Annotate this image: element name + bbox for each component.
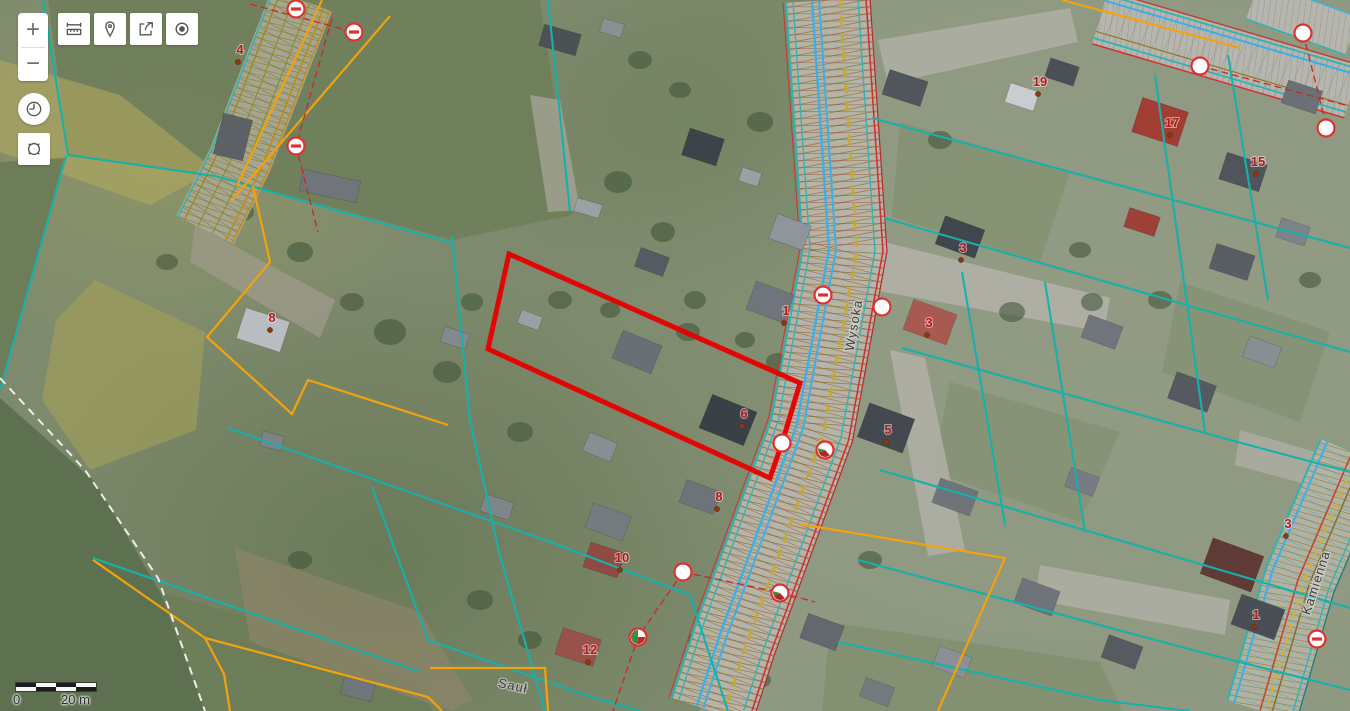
svg-text:6: 6 [740, 406, 747, 421]
sign-marker[interactable] [288, 138, 305, 155]
tree [507, 422, 533, 442]
sign-marker[interactable] [1192, 58, 1209, 75]
tree [287, 242, 313, 262]
sign-marker[interactable] [1309, 631, 1326, 648]
sign-marker[interactable] [815, 287, 832, 304]
svg-text:10: 10 [615, 550, 629, 565]
tree [684, 291, 706, 309]
tree [340, 293, 364, 311]
sign-marker[interactable] [772, 585, 789, 602]
tree [156, 254, 178, 270]
share-icon [136, 19, 156, 39]
terrain-patch [42, 280, 205, 470]
svg-text:8: 8 [268, 310, 275, 325]
sign-marker[interactable] [1318, 120, 1335, 137]
tree [735, 332, 755, 348]
svg-text:1: 1 [782, 303, 789, 318]
building [585, 503, 631, 541]
sign-marker[interactable] [774, 435, 791, 452]
ruler-icon [64, 19, 84, 39]
svg-text:4: 4 [236, 42, 244, 57]
svg-text:5: 5 [884, 422, 891, 437]
house-number: 8 [714, 489, 722, 512]
tree [1299, 272, 1321, 288]
pin-icon [100, 19, 120, 39]
measure-button[interactable] [58, 13, 90, 45]
svg-text:12: 12 [583, 642, 597, 657]
sign-marker[interactable] [675, 564, 692, 581]
tree [288, 551, 312, 569]
tree [467, 590, 493, 610]
svg-text:3: 3 [925, 315, 932, 330]
history-button[interactable] [18, 93, 50, 125]
map-canvas[interactable]: 41917153135688101231WysokaSaułKamienna [0, 0, 1350, 711]
svg-text:19: 19 [1033, 74, 1047, 89]
building [517, 310, 542, 331]
building [612, 330, 662, 374]
tree [461, 293, 483, 311]
record-icon [172, 19, 192, 39]
building [582, 432, 617, 462]
svg-text:15: 15 [1251, 154, 1265, 169]
scale-bar-cells [15, 682, 97, 692]
svg-text:8: 8 [715, 489, 722, 504]
scale-bar: 0 20 m [15, 682, 97, 692]
tree [1081, 293, 1103, 311]
street-name-label: Sauł [497, 675, 529, 696]
center-button[interactable] [18, 133, 50, 165]
tree [628, 51, 652, 69]
map-viewport[interactable]: 41917153135688101231WysokaSaułKamienna +… [0, 0, 1350, 711]
utility-line-red [613, 572, 683, 711]
tree [651, 222, 675, 242]
sign-marker[interactable] [817, 442, 834, 459]
tree [747, 112, 773, 132]
sign-marker[interactable] [288, 1, 305, 18]
building [738, 167, 761, 186]
tree [999, 302, 1025, 322]
tree [1069, 242, 1091, 258]
tree [604, 171, 632, 193]
locate-button[interactable] [166, 13, 198, 45]
crosshair-icon [24, 139, 44, 159]
building [699, 394, 757, 445]
sign-marker[interactable] [874, 299, 891, 316]
building [480, 494, 514, 520]
clock-icon [24, 99, 44, 119]
tree [669, 82, 691, 98]
building [682, 128, 725, 166]
building [440, 326, 470, 349]
sign-marker[interactable] [630, 629, 647, 646]
sign-marker[interactable] [346, 24, 363, 41]
svg-text:17: 17 [1165, 115, 1179, 130]
zoom-out-button[interactable]: − [18, 48, 48, 82]
scale-zero-label: 0 [13, 692, 20, 707]
svg-text:1: 1 [1252, 607, 1259, 622]
tree [433, 361, 461, 383]
sign-marker[interactable] [1295, 25, 1312, 42]
svg-text:3: 3 [959, 240, 966, 255]
building [574, 198, 603, 219]
zoom-in-button[interactable]: + [18, 13, 48, 47]
scale-distance-label: 20 m [61, 692, 90, 707]
building [634, 247, 669, 276]
tree [374, 319, 406, 345]
tree [548, 291, 572, 309]
building [599, 18, 624, 38]
share-button[interactable] [130, 13, 162, 45]
parcel-line-teal [228, 428, 545, 540]
parcel-line-teal [545, 540, 690, 595]
add-marker-button[interactable] [94, 13, 126, 45]
svg-text:3: 3 [1284, 516, 1291, 531]
zoom-control: + − [18, 13, 48, 81]
